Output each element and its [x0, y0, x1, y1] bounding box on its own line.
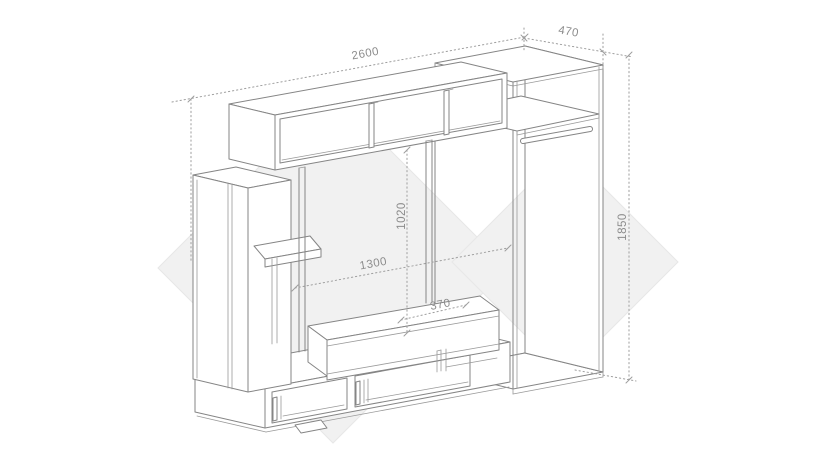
dimension-tick — [404, 147, 410, 153]
cabinet-left-side — [193, 175, 248, 392]
wardrobe-right-panel — [525, 46, 603, 372]
furniture-dimension-drawing: 2600 470 1020 1300 370 1850 — [0, 0, 825, 464]
bridge-divider — [444, 90, 449, 135]
cabinet-front — [248, 180, 291, 392]
drawing-canvas: 2600 470 1020 1300 370 1850 — [0, 0, 825, 464]
dimension-label-wardrobe-height: 1850 — [617, 213, 629, 241]
bridge-left-end-panel — [229, 104, 275, 170]
drawer-handle — [273, 397, 277, 421]
dimension-tick — [626, 52, 632, 58]
bridge-divider — [369, 103, 374, 148]
dimension-label-niche-height: 1020 — [396, 202, 408, 230]
drawer-handle — [356, 381, 360, 405]
dimension-label-total-width: 2600 — [351, 46, 380, 63]
dimension-label-wardrobe-depth: 470 — [557, 24, 579, 39]
